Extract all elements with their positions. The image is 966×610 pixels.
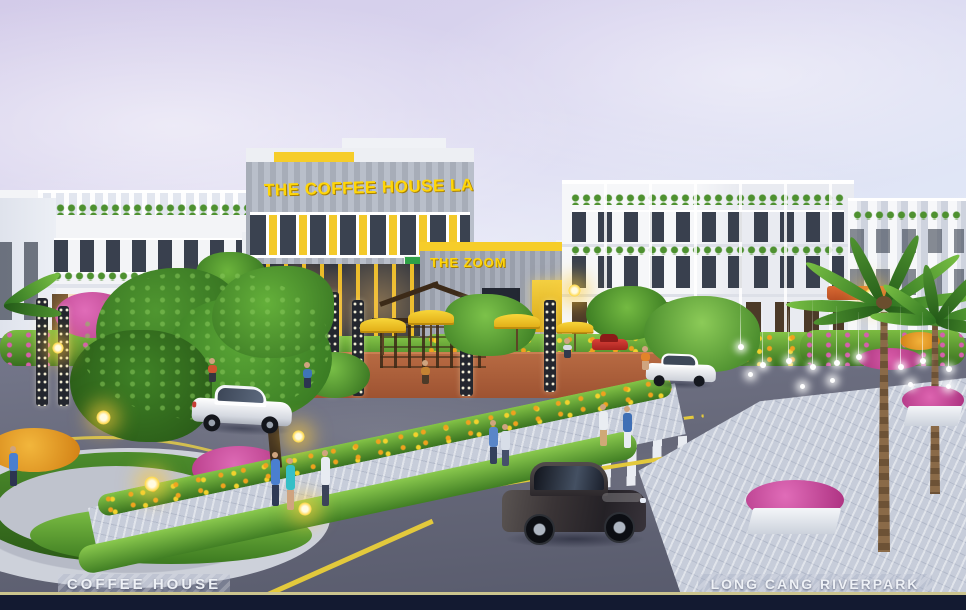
dark-sedan	[502, 460, 648, 550]
cafe-umbrella	[360, 318, 406, 355]
person-head	[304, 362, 310, 368]
person-legs	[600, 430, 607, 446]
light-bulb	[748, 372, 753, 377]
person-head	[642, 346, 648, 352]
person-torso	[623, 413, 632, 432]
person-head	[624, 406, 630, 412]
cafe-umbrella	[408, 310, 454, 347]
white-car-far	[645, 351, 716, 391]
car-taillight	[192, 401, 196, 407]
car-hood-highlight	[602, 493, 642, 502]
light-bulb	[946, 384, 951, 389]
pedestrian	[498, 424, 512, 466]
umbrella-canopy	[557, 322, 594, 334]
person-torso	[641, 353, 650, 361]
fairy-light	[52, 342, 64, 354]
person-legs	[490, 447, 497, 464]
person-torso	[501, 431, 510, 450]
umbrella-pole	[382, 333, 384, 355]
pedestrian	[638, 346, 652, 370]
white-planter-box	[747, 508, 841, 534]
umbrella-pole	[430, 325, 432, 347]
red-car	[592, 334, 628, 352]
person-legs	[322, 485, 329, 506]
person-legs	[422, 375, 429, 384]
person-legs	[287, 490, 294, 510]
person-head	[502, 424, 508, 430]
roof-planters	[44, 204, 249, 215]
roof-planters	[852, 211, 962, 220]
person-head	[10, 446, 16, 452]
fairy-light	[96, 410, 111, 425]
light-bulb	[830, 378, 835, 383]
person-legs	[10, 471, 17, 486]
person-head	[422, 360, 428, 366]
person-legs	[502, 450, 509, 466]
pedestrian-crosswalk	[620, 406, 634, 448]
caption-riverpark: LONG CANG RIVERPARK	[698, 574, 932, 594]
person-torso	[489, 427, 498, 447]
car-wheel	[604, 512, 635, 543]
person-head	[564, 338, 570, 344]
string-light	[740, 300, 741, 346]
cafe-patron	[418, 360, 432, 384]
string-light	[922, 312, 923, 360]
string-light	[788, 310, 789, 360]
white-sedan	[191, 383, 295, 438]
umbrella-pole	[516, 329, 518, 351]
fairy-light	[144, 476, 160, 492]
flower-bed-magenta	[858, 348, 922, 370]
person-head	[209, 358, 215, 364]
person-torso	[599, 411, 608, 430]
light-column	[544, 300, 556, 392]
car-headlight	[640, 498, 646, 503]
cafe-umbrella	[494, 314, 540, 351]
zoom-sign: THE ZOOM	[430, 255, 507, 270]
pedestrian	[268, 452, 282, 506]
light-column	[58, 306, 69, 406]
person-legs	[304, 378, 311, 388]
person-torso	[421, 367, 430, 375]
person-legs	[209, 373, 216, 382]
fairy-light	[298, 502, 312, 516]
car-glass	[534, 466, 604, 490]
string-light	[812, 300, 813, 366]
umbrella-canopy	[360, 318, 406, 333]
string-light	[948, 306, 949, 368]
person-torso	[286, 465, 295, 490]
person-head	[600, 404, 606, 410]
person-head	[272, 452, 278, 458]
roof-yellow-band	[274, 152, 354, 162]
car-wheel	[524, 514, 555, 545]
string-light	[836, 306, 837, 362]
person-legs	[272, 485, 279, 506]
pedestrian	[6, 446, 20, 486]
pedestrian-crosswalk	[596, 404, 610, 446]
footer-navy-bar	[0, 595, 966, 610]
person-head	[490, 420, 496, 426]
pedestrian	[283, 458, 297, 510]
person-torso	[303, 369, 312, 378]
annex-yellow-band	[420, 242, 570, 251]
umbrella-canopy	[408, 310, 454, 325]
light-bulb	[800, 384, 805, 389]
person-torso	[9, 453, 18, 471]
person-torso	[208, 365, 217, 373]
street-lamp-glow	[568, 284, 581, 297]
string-light	[858, 312, 859, 356]
person-head	[322, 450, 328, 456]
white-planter-box	[904, 406, 963, 426]
person-legs	[564, 350, 571, 358]
person-torso	[321, 457, 330, 485]
person-head	[287, 458, 293, 464]
light-bulb	[908, 382, 913, 387]
person-legs	[642, 361, 649, 370]
string-light	[900, 306, 901, 366]
car-glass	[663, 355, 695, 365]
cafe-patron	[205, 358, 219, 382]
string-light	[762, 306, 763, 364]
cafe-patron	[560, 338, 574, 358]
person-torso	[271, 459, 280, 485]
umbrella-pole	[574, 334, 576, 352]
fairy-light	[292, 430, 305, 443]
riverpark-rendering: THE COFFEE HOUSE LA THE ZOOM	[0, 0, 966, 610]
umbrella-canopy	[494, 314, 540, 329]
person-legs	[624, 432, 631, 448]
palm-crown-core	[876, 296, 892, 309]
pedestrian	[318, 450, 332, 506]
car-glass	[218, 388, 265, 403]
car-cabin	[600, 334, 618, 342]
cafe-patron	[300, 362, 314, 388]
